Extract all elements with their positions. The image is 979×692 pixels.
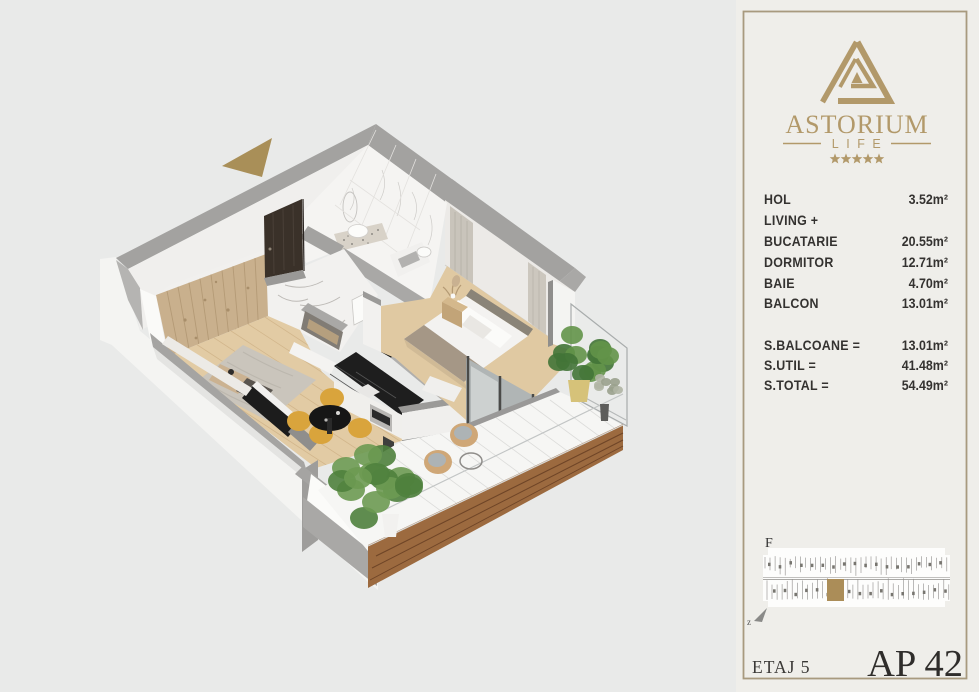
svg-text:ASTORIUM: ASTORIUM [785,110,928,139]
svg-text:z: z [747,617,751,627]
svg-text:BUCATARIE: BUCATARIE [764,234,838,250]
svg-text:41.48m²: 41.48m² [902,358,949,374]
svg-text:HOL: HOL [764,192,791,208]
svg-text:13.01m²: 13.01m² [902,296,949,312]
svg-text:13.01m²: 13.01m² [902,338,949,354]
svg-text:4.70m²: 4.70m² [909,276,949,292]
svg-text:12.71m²: 12.71m² [902,255,949,271]
svg-text:LIFE: LIFE [832,137,888,151]
svg-text:ETAJ 5: ETAJ 5 [752,657,811,677]
svg-text:3.52m²: 3.52m² [909,192,949,208]
svg-text:54.49m²: 54.49m² [902,378,949,394]
svg-text:S.BALCOANE =: S.BALCOANE = [764,338,860,354]
svg-text:20.55m²: 20.55m² [902,234,949,250]
svg-text:AP 42: AP 42 [867,643,963,685]
svg-text:LIVING +: LIVING + [764,213,818,229]
svg-text:S.TOTAL =: S.TOTAL = [764,378,829,394]
svg-text:BAIE: BAIE [764,276,795,292]
svg-text:S.UTIL =: S.UTIL = [764,358,816,374]
svg-text:BALCON: BALCON [764,296,819,312]
svg-text:DORMITOR: DORMITOR [764,255,834,271]
